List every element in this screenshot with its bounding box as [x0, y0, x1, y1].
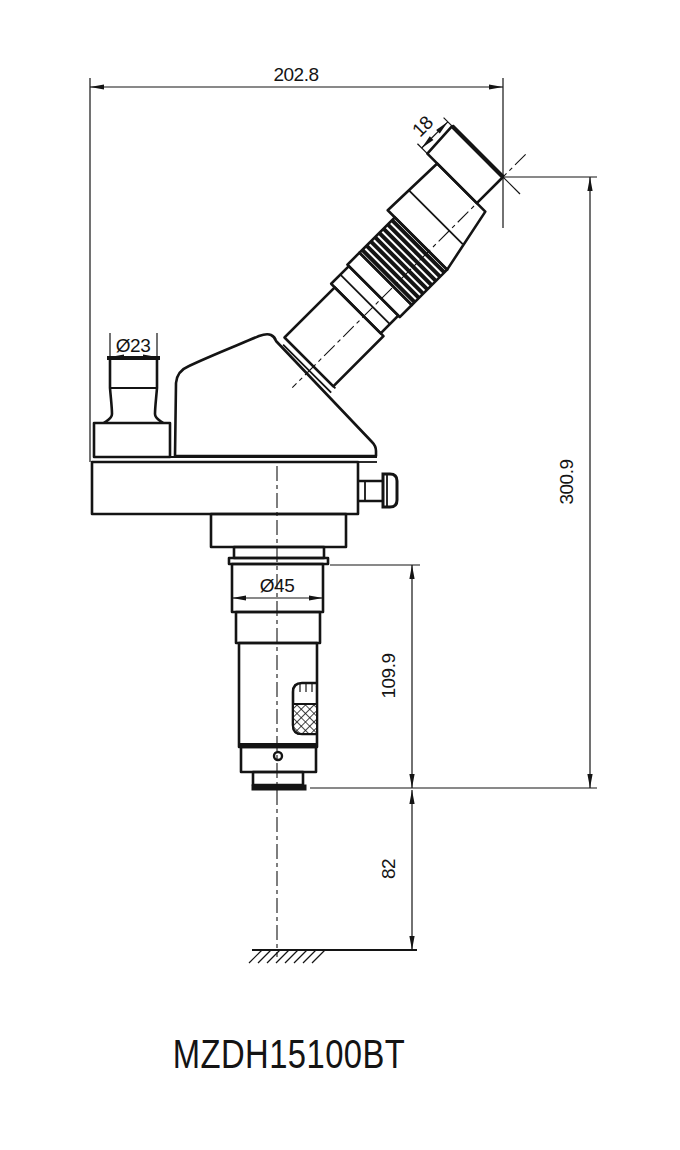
- objective-lens: [252, 785, 306, 790]
- arrowhead: [90, 84, 104, 89]
- main-body: [92, 462, 358, 514]
- dim-body-length: 109.9: [330, 565, 420, 788]
- eyepiece-tube: [233, 95, 548, 410]
- arrowhead: [409, 936, 414, 950]
- arrowhead: [409, 565, 414, 579]
- lens-step: [253, 772, 303, 785]
- lock-knob: [358, 474, 397, 507]
- eyepiece-mount-strip: [283, 340, 335, 392]
- arrowhead: [309, 595, 323, 600]
- arrowhead: [232, 595, 246, 600]
- arrowhead: [489, 84, 503, 89]
- microscope-technical-drawing: 202.8 18 Ø23 Ø45 300.9 109.9: [0, 0, 680, 1150]
- arrowhead: [587, 774, 592, 788]
- eyepiece-barrel: [388, 162, 495, 269]
- lock-knob-cap: [383, 474, 397, 507]
- technical-drawing-page: 202.8 18 Ø23 Ø45 300.9 109.9: [0, 0, 680, 1150]
- dim-label-overall-height: 300.9: [556, 459, 577, 504]
- dim-working-distance: 82: [378, 790, 415, 950]
- mount-neck: [234, 547, 324, 558]
- photo-port-base: [94, 423, 170, 457]
- drawing-title: MZDH15100BT: [173, 1032, 405, 1077]
- eyepiece-knurl-ring: [359, 217, 447, 305]
- focus-knob: [293, 683, 317, 734]
- arrowhead: [409, 774, 414, 788]
- mount-collar: [211, 514, 346, 547]
- dim-label-body-length: 109.9: [378, 653, 399, 698]
- dim-label-overall-width: 202.8: [273, 64, 318, 85]
- dim-label-working-distance: 82: [378, 859, 399, 879]
- arrowhead: [409, 790, 414, 804]
- binocular-head: [175, 334, 376, 456]
- dim-label-photo-port: Ø23: [116, 335, 150, 356]
- barrel-ring-line: [409, 190, 463, 244]
- dim-label-mount-diameter: Ø45: [260, 575, 294, 596]
- photo-port: [94, 358, 170, 457]
- ground-symbol: [249, 950, 417, 963]
- set-screw: [274, 752, 282, 760]
- zoom-ring: [236, 612, 320, 643]
- knurl-texture: [293, 704, 317, 734]
- arrowhead: [587, 177, 592, 191]
